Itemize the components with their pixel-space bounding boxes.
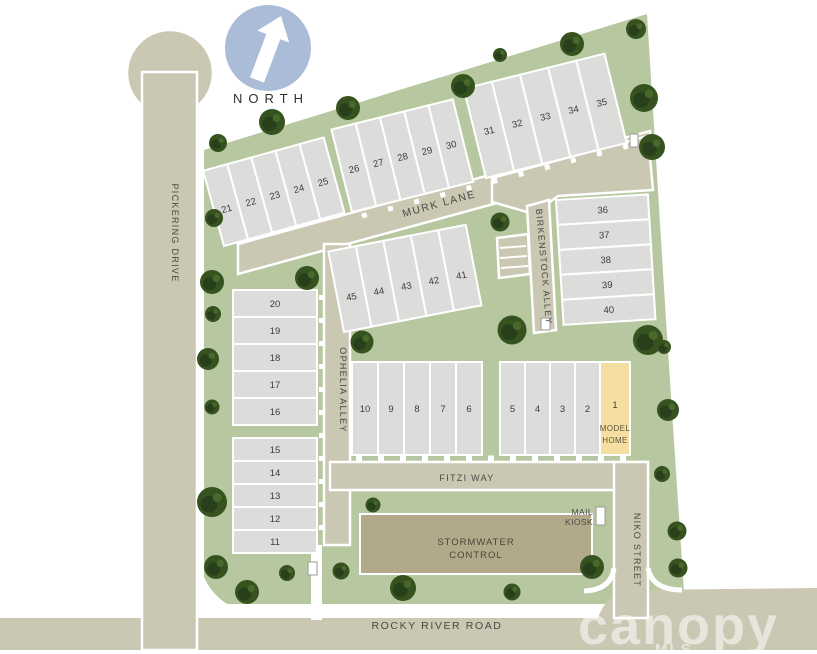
lot-number: 38	[600, 255, 611, 267]
model-home-label: MODEL	[600, 424, 631, 433]
lot-number: 1	[612, 400, 617, 411]
lot-number: 20	[270, 299, 281, 310]
tree-icon	[204, 555, 228, 579]
tree-icon	[200, 270, 224, 294]
lot-number: 3	[560, 404, 565, 415]
tree-icon	[390, 575, 416, 601]
tree-icon	[669, 559, 688, 578]
lot-number: 5	[510, 404, 515, 415]
tree-icon	[295, 266, 319, 290]
tree-icon	[205, 306, 221, 322]
lot-number: 39	[602, 280, 613, 292]
watermark-sub: MLS	[655, 641, 693, 654]
tree-icon	[279, 565, 295, 581]
site-plan-map: STORMWATER CONTROL 21 22 23 24 25 26 27 …	[0, 0, 817, 654]
tree-icon	[657, 340, 671, 354]
stormwater-label: CONTROL	[449, 550, 502, 561]
lot-number: 8	[414, 404, 419, 415]
tree-icon	[336, 96, 360, 120]
tree-icon	[197, 487, 227, 517]
site-plan-page: STORMWATER CONTROL 21 22 23 24 25 26 27 …	[0, 0, 817, 654]
lot-number: 17	[270, 380, 281, 391]
lot-number: 43	[400, 280, 412, 293]
lot-number: 10	[360, 404, 371, 415]
tree-icon	[626, 19, 646, 39]
street-label-ophelia: OPHELIA ALLEY	[338, 347, 348, 432]
lot-number: 15	[270, 445, 281, 456]
tree-icon	[504, 584, 521, 601]
tree-icon	[560, 32, 584, 56]
mail-kiosk-label: KIOSK	[565, 517, 593, 527]
lot-block-west-north: 20 19 18 17 16	[233, 290, 317, 425]
tree-icon	[668, 522, 687, 541]
tree-icon	[493, 48, 507, 62]
street-label-pickering: PICKERING DRIVE	[170, 183, 180, 282]
street-label-fitzi: FITZI WAY	[439, 473, 494, 483]
lot-block-fitzi-east: 5 4 3 2 1 MODEL HOME	[500, 362, 630, 455]
lot-number: 13	[270, 491, 281, 502]
lot-number: 19	[270, 326, 281, 337]
tree-icon	[491, 213, 510, 232]
pickering-drive	[142, 72, 197, 650]
north-arrow: NORTH	[225, 5, 311, 106]
tree-icon	[498, 316, 527, 345]
tree-icon	[351, 331, 374, 354]
tree-icon	[366, 498, 381, 513]
tree-icon	[205, 400, 220, 415]
lot-number: 45	[345, 291, 357, 304]
lot-number: 41	[455, 270, 467, 283]
north-label: NORTH	[233, 91, 309, 106]
lot-number: 40	[603, 305, 614, 317]
lot-number: 4	[535, 404, 540, 415]
tree-icon	[580, 555, 604, 579]
lot-number: 9	[388, 404, 393, 415]
tree-icon	[630, 84, 658, 112]
lot-block-west-south: 15 14 13 12 11	[233, 438, 317, 553]
tree-icon	[235, 580, 259, 604]
lot-number: 36	[597, 205, 608, 217]
lot-number: 16	[270, 407, 281, 418]
stormwater-label: STORMWATER	[437, 537, 514, 548]
model-home-label: HOME	[602, 436, 628, 445]
tree-icon	[209, 134, 227, 152]
lot-number: 2	[585, 404, 590, 415]
tree-icon	[451, 74, 475, 98]
mail-kiosk-icon	[596, 507, 605, 525]
tree-icon	[654, 466, 670, 482]
street-label-rocky: ROCKY RIVER ROAD	[371, 620, 502, 632]
lot-number: 7	[440, 404, 445, 415]
tree-icon	[197, 348, 219, 370]
tree-icon	[657, 399, 679, 421]
utility-marker	[630, 134, 638, 147]
lot-number: 14	[270, 468, 281, 479]
lot-number: 44	[373, 286, 385, 299]
watermark: canopy MLS	[578, 596, 779, 654]
lot-number: 18	[270, 353, 281, 364]
tree-icon	[333, 563, 350, 580]
tree-icon	[639, 134, 665, 160]
utility-marker	[308, 562, 317, 575]
tree-icon	[259, 109, 285, 135]
ophelia-walkway	[311, 545, 322, 620]
lot-number: 11	[270, 537, 280, 548]
lot-number: 37	[599, 230, 610, 242]
street-label-niko: NIKO STREET	[632, 513, 642, 587]
lot-block-birkenstock: 36 37 38 39 40	[556, 194, 655, 324]
lot-number: 6	[466, 404, 471, 415]
mail-kiosk-label: MAIL	[572, 507, 593, 517]
lot-number: 12	[270, 514, 281, 525]
lot-number: 42	[428, 275, 440, 288]
tree-icon	[205, 209, 223, 227]
lot-block-fitzi-west: 10 9 8 7 6	[352, 362, 482, 455]
